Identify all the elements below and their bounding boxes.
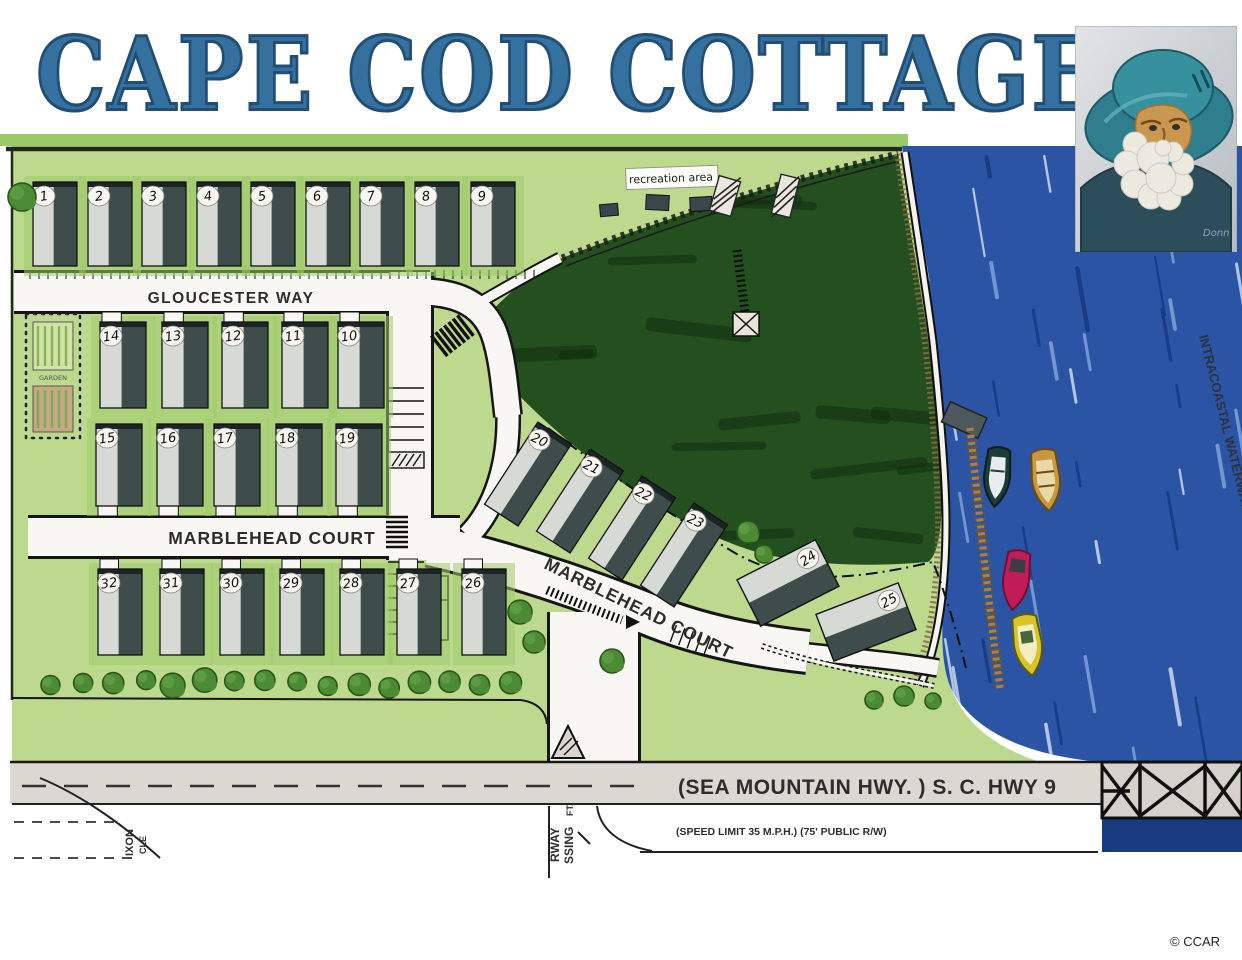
side-street-label-b: CLE xyxy=(138,836,148,854)
lot-29: 29 xyxy=(280,559,324,655)
street-label-gloucester-way: GLOUCESTER WAY xyxy=(148,290,315,307)
tree xyxy=(74,673,93,692)
lot-18: 18 xyxy=(276,424,322,516)
lot-10: 10 xyxy=(338,312,384,408)
lot-11: 11 xyxy=(282,312,328,408)
svg-text:27: 27 xyxy=(399,575,418,592)
lot-28: 28 xyxy=(340,559,384,655)
tree xyxy=(737,521,759,543)
lot-6: 6 xyxy=(306,182,350,266)
tree xyxy=(894,686,914,706)
svg-text:19: 19 xyxy=(338,430,356,447)
tree xyxy=(925,693,941,709)
svg-text:13: 13 xyxy=(164,328,182,345)
tree xyxy=(137,671,156,690)
tree xyxy=(348,673,370,695)
bridge xyxy=(1102,762,1242,852)
top-border-strip xyxy=(0,134,908,146)
lot-7: 7 xyxy=(360,182,404,266)
lot-14: 14 xyxy=(100,312,146,408)
site-plan-svg: GARDEN recreation area xyxy=(0,0,1242,960)
tree xyxy=(192,668,216,692)
tree xyxy=(755,545,773,563)
svg-text:31: 31 xyxy=(162,575,180,592)
tree xyxy=(8,183,36,211)
lot-32: 32 xyxy=(98,559,142,655)
lot-12: 12 xyxy=(222,312,268,408)
lot-30: 30 xyxy=(220,559,264,655)
svg-text:17: 17 xyxy=(216,430,235,447)
svg-text:11: 11 xyxy=(284,328,302,345)
entrance-street-label-b: SSING xyxy=(562,827,576,864)
tree xyxy=(288,672,306,690)
lot-9: 9 xyxy=(471,182,515,266)
fisherman-painting: Donn xyxy=(1075,26,1237,252)
lot-17: 17 xyxy=(214,424,260,516)
page: CAPE COD COTTAGES xyxy=(0,0,1242,960)
tree xyxy=(160,673,185,698)
tree xyxy=(379,678,399,698)
garden-label: GARDEN xyxy=(39,374,67,382)
lot-27: 27 xyxy=(397,559,441,655)
copyright-credit: © CCAR xyxy=(1170,934,1220,949)
tree xyxy=(508,600,532,624)
tree xyxy=(225,671,244,690)
svg-text:32: 32 xyxy=(100,575,118,592)
lot-16: 16 xyxy=(157,424,203,516)
lot-13: 13 xyxy=(162,312,208,408)
svg-text:16: 16 xyxy=(159,430,177,447)
svg-text:15: 15 xyxy=(98,430,116,447)
tree xyxy=(255,670,275,690)
svg-text:30: 30 xyxy=(222,575,240,592)
tree xyxy=(600,649,624,673)
svg-text:18: 18 xyxy=(278,430,296,447)
svg-text:29: 29 xyxy=(282,575,300,592)
picnic-table xyxy=(646,194,670,210)
side-street-label-a: IXON xyxy=(124,829,136,856)
picnic-table xyxy=(600,203,619,217)
tree xyxy=(318,677,337,696)
lot-1: 1 xyxy=(33,182,77,266)
street-label-marblehead-court: MARBLEHEAD COURT xyxy=(168,528,376,548)
svg-text:10: 10 xyxy=(340,328,358,345)
lot-8: 8 xyxy=(415,182,459,266)
speed-limit-label: (SPEED LIMIT 35 M.P.H.) (75' PUBLIC R/W) xyxy=(676,826,887,838)
tree xyxy=(865,691,883,709)
lot-3: 3 xyxy=(142,182,186,266)
svg-text:12: 12 xyxy=(224,328,242,345)
lot-26: 26 xyxy=(462,559,506,655)
picnic-table xyxy=(690,196,713,211)
lot-5: 5 xyxy=(251,182,295,266)
svg-text:26: 26 xyxy=(464,575,482,592)
tree xyxy=(103,673,124,694)
entrance-street-label-c: FT. xyxy=(565,804,575,817)
highway-label: (SEA MOUNTAIN HWY. ) S. C. HWY 9 xyxy=(678,776,1056,799)
painting-signature: Donn xyxy=(1203,228,1230,239)
tree xyxy=(41,676,60,695)
lot-15: 15 xyxy=(96,424,142,516)
svg-text:28: 28 xyxy=(342,575,360,592)
lot-19: 19 xyxy=(336,424,382,516)
entrance-street-label-a: RWAY xyxy=(548,827,562,862)
lot-2: 2 xyxy=(88,182,132,266)
lot-31: 31 xyxy=(160,559,204,655)
tree xyxy=(500,672,522,694)
tree xyxy=(523,631,545,653)
svg-text:14: 14 xyxy=(102,328,120,345)
lot-4: 4 xyxy=(197,182,241,266)
tree xyxy=(469,675,489,695)
tree xyxy=(408,671,430,693)
tree xyxy=(439,671,460,692)
